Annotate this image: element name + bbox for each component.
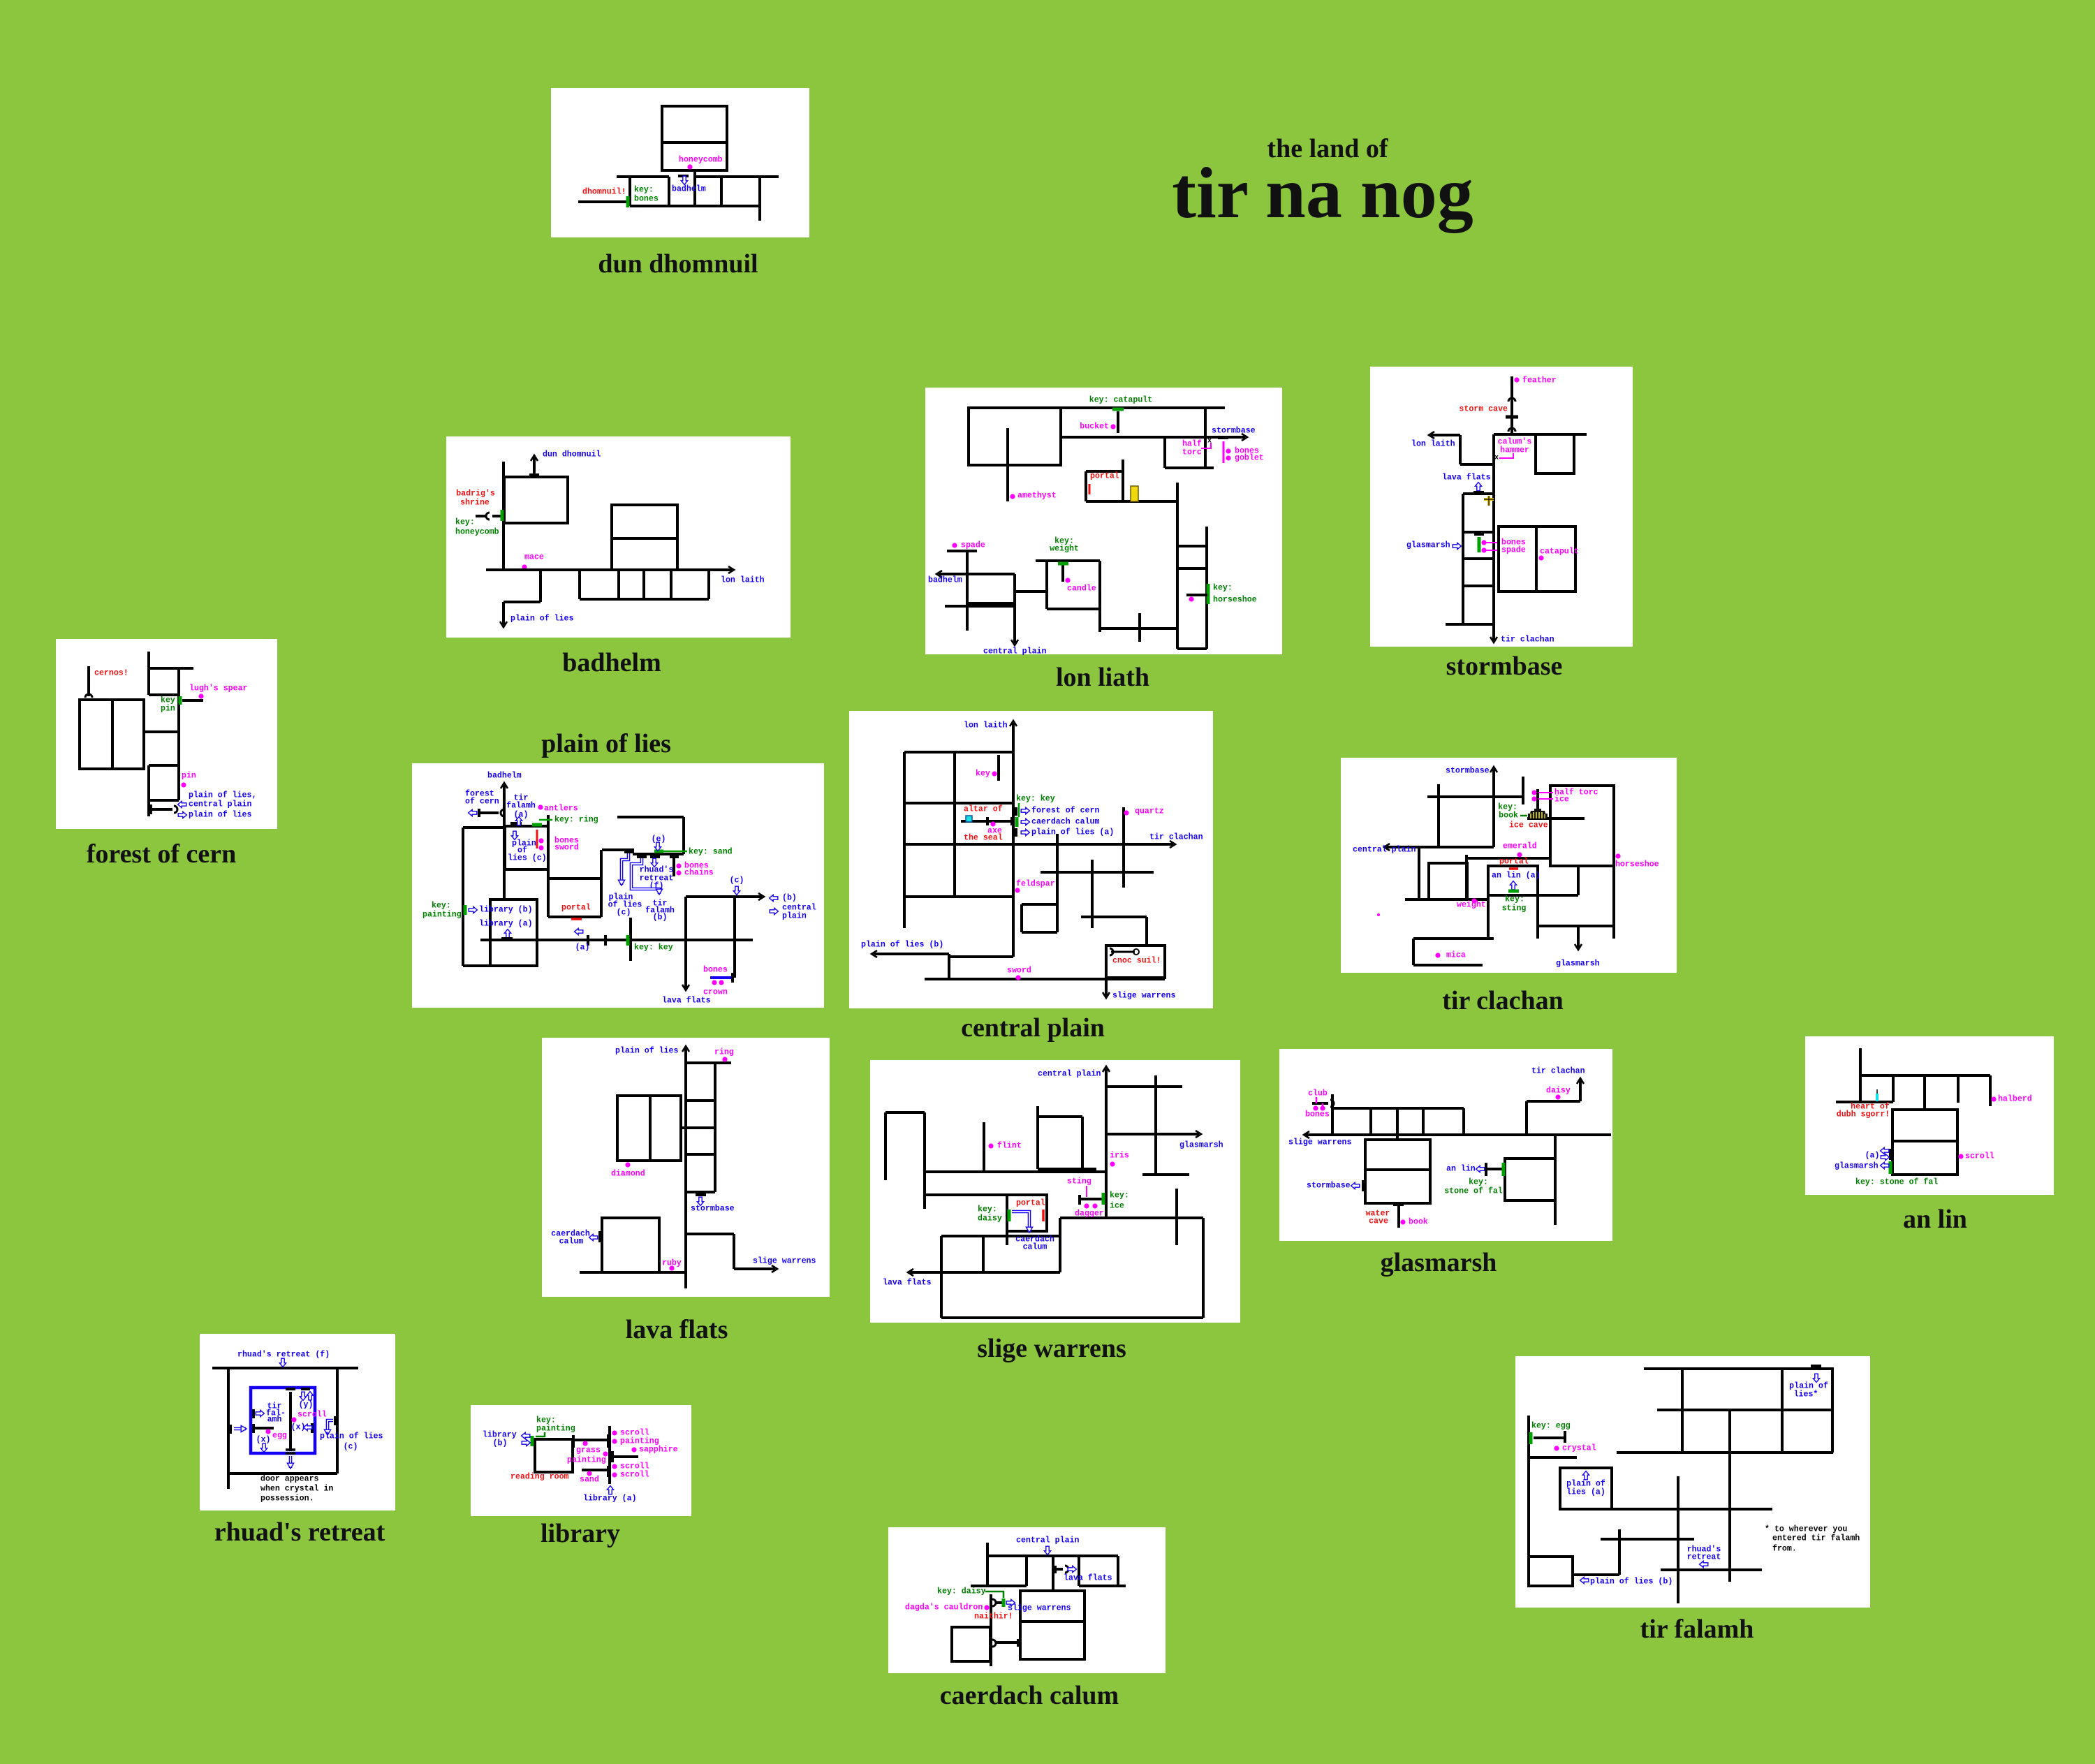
svg-text:sand: sand bbox=[580, 1476, 599, 1485]
svg-text:portal: portal bbox=[561, 904, 591, 913]
svg-text:forest of cern: forest of cern bbox=[87, 839, 237, 869]
svg-text:an lin: an lin bbox=[1446, 1165, 1476, 1174]
svg-text:sting: sting bbox=[1067, 1177, 1091, 1186]
svg-text:flint: flint bbox=[997, 1142, 1022, 1151]
svg-text:egg: egg bbox=[272, 1432, 287, 1441]
svg-text:badhelm: badhelm bbox=[562, 648, 661, 677]
svg-text:plain of lies: plain of lies bbox=[320, 1432, 383, 1441]
svg-text:bones: bones bbox=[634, 195, 659, 204]
svg-text:calum: calum bbox=[559, 1237, 584, 1247]
svg-text:key:: key: bbox=[634, 186, 654, 195]
svg-text:painting: painting bbox=[536, 1425, 575, 1434]
svg-text:cnoc suil!: cnoc suil! bbox=[1112, 957, 1161, 966]
svg-text:grass: grass bbox=[576, 1446, 601, 1455]
svg-text:stormbase: stormbase bbox=[1446, 767, 1490, 776]
svg-text:pin: pin bbox=[161, 705, 175, 714]
svg-text:plain of lies,: plain of lies, bbox=[189, 791, 256, 800]
svg-text:sword: sword bbox=[554, 844, 579, 853]
svg-text:(c): (c) bbox=[344, 1443, 358, 1452]
svg-text:key: egg: key: egg bbox=[1531, 1422, 1571, 1431]
svg-text:key: key bbox=[976, 770, 990, 779]
svg-text:sting: sting bbox=[1502, 904, 1527, 913]
svg-text:plain of lies: plain of lies bbox=[615, 1047, 678, 1056]
svg-text:when crystal in: when crystal in bbox=[260, 1485, 333, 1494]
svg-text:scroll: scroll bbox=[1965, 1152, 1994, 1161]
svg-text:book: book bbox=[1409, 1218, 1428, 1227]
svg-text:badhelm: badhelm bbox=[487, 772, 522, 781]
svg-text:feather: feather bbox=[1522, 376, 1557, 385]
svg-text:amethyst: amethyst bbox=[1017, 492, 1057, 501]
svg-text:daisy: daisy bbox=[1546, 1087, 1571, 1096]
svg-text:stormbase: stormbase bbox=[691, 1205, 735, 1214]
svg-text:portal: portal bbox=[1016, 1199, 1045, 1208]
svg-text:an lin (a): an lin (a) bbox=[1492, 872, 1541, 881]
svg-text:altar of: altar of bbox=[964, 805, 1003, 814]
svg-text:naithir!: naithir! bbox=[974, 1612, 1013, 1622]
svg-text:storm cave: storm cave bbox=[1459, 405, 1508, 414]
svg-text:honeycomb: honeycomb bbox=[455, 528, 499, 537]
svg-text:glasmarsh: glasmarsh bbox=[1835, 1162, 1879, 1171]
svg-text:key:: key: bbox=[1469, 1178, 1488, 1187]
svg-text:(b): (b) bbox=[653, 913, 668, 923]
svg-text:antlers: antlers bbox=[544, 804, 578, 814]
svg-text:sword: sword bbox=[1007, 966, 1031, 976]
svg-text:dagger: dagger bbox=[1075, 1210, 1104, 1219]
svg-text:key: daisy: key: daisy bbox=[937, 1587, 986, 1596]
svg-text:badhelm: badhelm bbox=[672, 185, 706, 194]
svg-text:lava flats: lava flats bbox=[626, 1315, 728, 1344]
svg-text:badrig's: badrig's bbox=[456, 490, 495, 499]
svg-text:painting: painting bbox=[567, 1456, 606, 1465]
svg-text:key:: key: bbox=[432, 902, 451, 911]
svg-text:key: stone of fal: key: stone of fal bbox=[1855, 1178, 1938, 1187]
svg-text:amh: amh bbox=[267, 1416, 282, 1425]
svg-text:dubh sgorr!: dubh sgorr! bbox=[1837, 1110, 1890, 1119]
svg-text:central plain: central plain bbox=[189, 800, 251, 809]
svg-text:portal: portal bbox=[1499, 858, 1529, 867]
svg-text:lava flats: lava flats bbox=[1442, 473, 1491, 483]
svg-text:crystal: crystal bbox=[1562, 1444, 1596, 1453]
svg-text:central plain: central plain bbox=[1353, 846, 1416, 855]
svg-text:lava flats: lava flats bbox=[883, 1279, 932, 1288]
svg-text:painting: painting bbox=[422, 911, 462, 920]
svg-text:mace: mace bbox=[524, 553, 544, 562]
svg-text:pin: pin bbox=[182, 772, 196, 781]
svg-text:(b): (b) bbox=[493, 1439, 508, 1448]
svg-text:(a): (a) bbox=[575, 943, 590, 953]
svg-text:key: key: key: key bbox=[1016, 795, 1055, 804]
svg-text:weight: weight bbox=[1457, 901, 1486, 910]
svg-text:stormbase: stormbase bbox=[1446, 652, 1563, 681]
svg-text:club: club bbox=[1308, 1089, 1328, 1098]
svg-text:lies (a): lies (a) bbox=[1566, 1488, 1605, 1497]
svg-text:key: key: key: key bbox=[634, 943, 673, 953]
svg-text:lugh's spear: lugh's spear bbox=[189, 684, 248, 693]
svg-text:stormbase: stormbase bbox=[1307, 1182, 1351, 1191]
svg-text:plain of lies (b): plain of lies (b) bbox=[861, 941, 943, 950]
svg-text:(b): (b) bbox=[782, 894, 797, 903]
svg-text:scroll: scroll bbox=[620, 1471, 649, 1480]
svg-text:sapphire: sapphire bbox=[639, 1446, 678, 1455]
svg-text:feldspar: feldspar bbox=[1016, 880, 1055, 889]
svg-text:bones: bones bbox=[1305, 1110, 1330, 1119]
svg-text:library (a): library (a) bbox=[583, 1494, 637, 1504]
svg-text:glasmarsh: glasmarsh bbox=[1381, 1248, 1497, 1277]
svg-text:weight: weight bbox=[1050, 545, 1079, 554]
svg-text:spade: spade bbox=[961, 541, 985, 550]
svg-text:forest of cern: forest of cern bbox=[1031, 807, 1099, 816]
svg-text:(c): (c) bbox=[617, 909, 631, 918]
svg-text:central plain: central plain bbox=[1038, 1070, 1101, 1079]
svg-text:key:: key: bbox=[1505, 895, 1524, 904]
svg-text:central plain: central plain bbox=[1016, 1536, 1079, 1545]
svg-text:(y): (y) bbox=[299, 1401, 314, 1410]
svg-text:lava flats: lava flats bbox=[662, 997, 711, 1006]
svg-text:retreat: retreat bbox=[1687, 1553, 1721, 1562]
svg-text:horseshoe: horseshoe bbox=[1615, 860, 1659, 869]
svg-text:slige warrens: slige warrens bbox=[1008, 1604, 1071, 1613]
svg-text:possession.: possession. bbox=[260, 1494, 314, 1504]
svg-text:key:: key: bbox=[1213, 584, 1233, 593]
svg-text:portal: portal bbox=[1090, 472, 1119, 481]
svg-text:ice cave: ice cave bbox=[1509, 821, 1548, 830]
svg-text:door appears: door appears bbox=[260, 1475, 319, 1484]
svg-text:quartz: quartz bbox=[1135, 807, 1164, 816]
svg-text:(a): (a) bbox=[1865, 1152, 1880, 1161]
svg-text:stone of fal: stone of fal bbox=[1444, 1187, 1503, 1196]
svg-text:torc: torc bbox=[1182, 448, 1202, 457]
svg-text:tir clachan: tir clachan bbox=[1501, 635, 1554, 645]
svg-text:dagda's cauldron: dagda's cauldron bbox=[905, 1603, 983, 1612]
svg-text:plain of lies (a): plain of lies (a) bbox=[1031, 828, 1114, 837]
svg-text:catapult: catapult bbox=[1540, 547, 1579, 557]
svg-text:slige warrens: slige warrens bbox=[977, 1334, 1126, 1363]
svg-text:bucket: bucket bbox=[1080, 422, 1109, 432]
svg-text:scroll: scroll bbox=[297, 1411, 327, 1420]
svg-text:key: sand: key: sand bbox=[689, 848, 733, 857]
svg-text:library (b): library (b) bbox=[479, 906, 533, 915]
svg-text:an lin: an lin bbox=[1903, 1205, 1967, 1234]
svg-text:emerald: emerald bbox=[1503, 842, 1537, 851]
svg-text:the seal: the seal bbox=[964, 834, 1003, 843]
svg-text:lon liath: lon liath bbox=[1056, 663, 1149, 692]
svg-text:daisy: daisy bbox=[978, 1214, 1002, 1223]
svg-text:key:: key: bbox=[1110, 1191, 1129, 1200]
svg-text:key: catapult: key: catapult bbox=[1089, 396, 1152, 405]
svg-text:(a): (a) bbox=[514, 811, 529, 820]
svg-text:halberd: halberd bbox=[1998, 1095, 2032, 1104]
svg-text:lon laith: lon laith bbox=[721, 576, 765, 585]
svg-text:slige warrens: slige warrens bbox=[1288, 1138, 1351, 1147]
svg-text:plain of lies: plain of lies bbox=[510, 615, 573, 624]
svg-text:dun dhomnuil: dun dhomnuil bbox=[598, 249, 758, 279]
svg-text:lies (c): lies (c) bbox=[508, 854, 547, 863]
svg-text:lies*: lies* bbox=[1794, 1390, 1818, 1399]
svg-text:diamond: diamond bbox=[611, 1170, 645, 1179]
svg-text:key: ring: key: ring bbox=[554, 816, 598, 825]
svg-text:plain of lies: plain of lies bbox=[541, 729, 671, 758]
svg-text:spade: spade bbox=[1501, 546, 1526, 555]
svg-text:caerdach calum: caerdach calum bbox=[1031, 818, 1099, 827]
svg-text:central plain: central plain bbox=[961, 1013, 1105, 1043]
svg-text:dhomnuil!: dhomnuil! bbox=[582, 188, 626, 197]
svg-text:glasmarsh: glasmarsh bbox=[1406, 541, 1450, 550]
svg-text:rhuad's retreat: rhuad's retreat bbox=[214, 1517, 385, 1547]
svg-text:reading room: reading room bbox=[510, 1473, 569, 1482]
svg-text:* to wherever you: * to wherever you bbox=[1765, 1525, 1847, 1534]
svg-text:tir clachan: tir clachan bbox=[1442, 986, 1563, 1015]
svg-text:from.: from. bbox=[1772, 1545, 1797, 1554]
svg-text:key:: key: bbox=[455, 518, 475, 527]
svg-text:honeycomb: honeycomb bbox=[679, 156, 723, 165]
svg-text:central plain: central plain bbox=[983, 647, 1046, 656]
svg-text:stormbase: stormbase bbox=[1212, 427, 1256, 436]
svg-text:plain of lies: plain of lies bbox=[189, 811, 251, 820]
svg-text:horseshoe: horseshoe bbox=[1213, 596, 1257, 605]
svg-text:tir na nog: tir na nog bbox=[1172, 153, 1473, 233]
svg-text:calum: calum bbox=[1023, 1243, 1047, 1252]
svg-text:bones: bones bbox=[703, 966, 728, 975]
svg-text:iris: iris bbox=[1110, 1152, 1129, 1161]
svg-text:of cern: of cern bbox=[465, 798, 499, 807]
svg-text:painting: painting bbox=[620, 1437, 659, 1446]
svg-text:candle: candle bbox=[1067, 585, 1096, 594]
svg-text:tir falamh: tir falamh bbox=[1640, 1615, 1754, 1644]
svg-text:entered tir falamh: entered tir falamh bbox=[1772, 1534, 1860, 1543]
svg-text:glasmarsh: glasmarsh bbox=[1556, 960, 1600, 969]
svg-text:book: book bbox=[1499, 811, 1518, 821]
svg-text:dun dhomnuil: dun dhomnuil bbox=[543, 450, 601, 460]
svg-text:lon laith: lon laith bbox=[964, 721, 1008, 730]
svg-text:plain of lies (b): plain of lies (b) bbox=[1590, 1578, 1673, 1587]
svg-text:glasmarsh: glasmarsh bbox=[1179, 1141, 1223, 1150]
svg-text:lon laith: lon laith bbox=[1411, 440, 1455, 449]
svg-text:ring: ring bbox=[714, 1048, 734, 1057]
svg-text:goblet: goblet bbox=[1235, 454, 1264, 463]
svg-text:tir clachan: tir clachan bbox=[1531, 1067, 1585, 1076]
svg-text:plain: plain bbox=[782, 912, 807, 921]
svg-text:tir clachan: tir clachan bbox=[1149, 833, 1203, 842]
svg-text:hammer: hammer bbox=[1500, 446, 1529, 455]
svg-text:badhelm: badhelm bbox=[928, 576, 962, 585]
svg-text:ice: ice bbox=[1554, 795, 1569, 804]
svg-text:key:: key: bbox=[978, 1205, 997, 1214]
svg-text:cave: cave bbox=[1369, 1217, 1388, 1226]
svg-text:caerdach calum: caerdach calum bbox=[940, 1681, 1119, 1710]
svg-text:cernos!: cernos! bbox=[94, 669, 128, 678]
svg-text:library: library bbox=[541, 1519, 620, 1548]
svg-text:shrine: shrine bbox=[460, 499, 490, 508]
svg-text:falamh: falamh bbox=[506, 802, 536, 811]
svg-text:x: x bbox=[1494, 455, 1499, 462]
svg-text:(c): (c) bbox=[730, 876, 744, 885]
svg-text:chains: chains bbox=[684, 869, 714, 878]
svg-text:ice: ice bbox=[1110, 1202, 1124, 1211]
svg-text:library (a): library (a) bbox=[479, 920, 533, 929]
svg-text:slige warrens: slige warrens bbox=[753, 1257, 816, 1266]
svg-text:mica: mica bbox=[1446, 951, 1466, 960]
svg-text:lava flats: lava flats bbox=[1064, 1574, 1112, 1583]
svg-text:slige warrens: slige warrens bbox=[1112, 992, 1175, 1001]
